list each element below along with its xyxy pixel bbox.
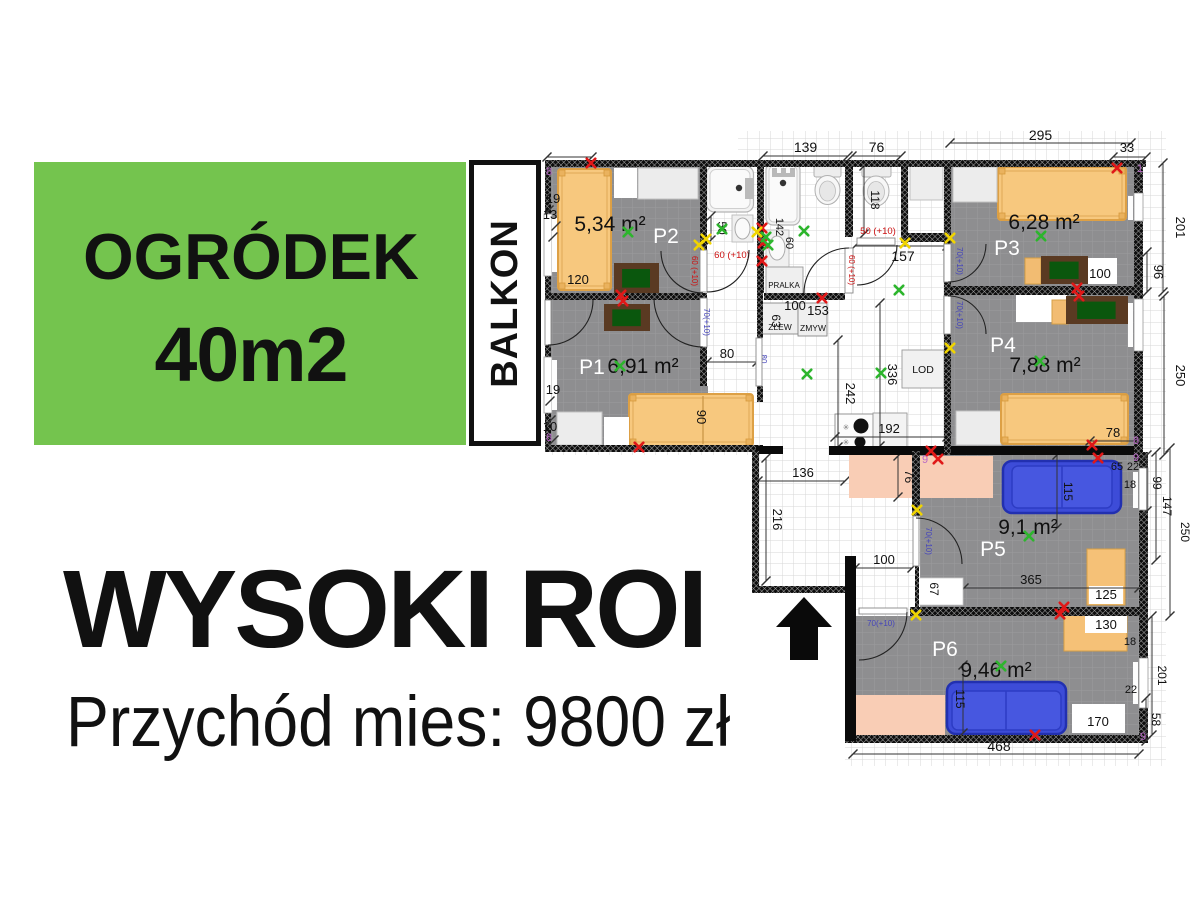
- svg-text:250: 250: [1173, 365, 1188, 387]
- svg-text:P3: P3: [994, 237, 1020, 260]
- svg-text:136: 136: [792, 465, 814, 480]
- svg-text:LOD: LOD: [912, 364, 934, 376]
- svg-text:142: 142: [773, 218, 785, 236]
- svg-text:100: 100: [1089, 266, 1111, 281]
- svg-text:6,28 m²: 6,28 m²: [1008, 211, 1079, 234]
- svg-text:96: 96: [1151, 265, 1166, 279]
- svg-text:120: 120: [567, 272, 589, 287]
- svg-text:100: 100: [784, 298, 806, 313]
- svg-text:295: 295: [1029, 127, 1053, 143]
- svg-text:18: 18: [1124, 479, 1136, 491]
- svg-text:22: 22: [1125, 684, 1137, 696]
- svg-text:70(+10): 70(+10): [955, 247, 964, 275]
- svg-text:130: 130: [1095, 617, 1117, 632]
- svg-text:336: 336: [885, 364, 900, 386]
- svg-text:9: 9: [922, 454, 928, 466]
- svg-text:33: 33: [1120, 140, 1134, 155]
- svg-text:192: 192: [878, 421, 900, 436]
- svg-text:65: 65: [1111, 461, 1123, 473]
- svg-text:9: 9: [1140, 731, 1146, 743]
- svg-text:90: 90: [694, 410, 709, 424]
- svg-text:PRALKA: PRALKA: [768, 281, 800, 290]
- svg-text:63: 63: [769, 314, 783, 328]
- svg-text:153: 153: [807, 303, 829, 318]
- svg-text:468: 468: [987, 738, 1011, 754]
- svg-text:60 (+10): 60 (+10): [847, 255, 856, 285]
- svg-text:70(+10): 70(+10): [702, 308, 711, 336]
- svg-text:P1: P1: [579, 356, 605, 379]
- svg-text:115: 115: [1061, 482, 1075, 501]
- svg-text:70(+10): 70(+10): [867, 619, 895, 628]
- svg-text:201: 201: [1155, 665, 1169, 685]
- svg-text:80: 80: [720, 346, 734, 361]
- svg-text:✳: ✳: [843, 438, 850, 447]
- svg-text:58: 58: [1149, 713, 1163, 727]
- svg-text:157: 157: [891, 248, 915, 264]
- svg-text:139: 139: [794, 139, 818, 155]
- svg-text:365: 365: [1020, 572, 1042, 587]
- svg-text:67: 67: [927, 582, 941, 596]
- svg-text:18: 18: [1124, 636, 1136, 648]
- svg-text:8: 8: [546, 432, 552, 444]
- svg-text:100: 100: [873, 552, 895, 567]
- svg-text:19: 19: [546, 191, 560, 206]
- svg-text:5,34 m²: 5,34 m²: [574, 213, 645, 236]
- svg-text:118: 118: [868, 190, 882, 209]
- svg-text:P6: P6: [932, 638, 958, 661]
- svg-text:60 (+10): 60 (+10): [690, 256, 699, 286]
- svg-text:99: 99: [1150, 476, 1164, 490]
- svg-text:147: 147: [1160, 496, 1174, 516]
- svg-text:8: 8: [546, 166, 552, 178]
- svg-text:201: 201: [1173, 217, 1188, 239]
- svg-text:ZMYW: ZMYW: [800, 323, 826, 333]
- svg-text:60: 60: [783, 237, 795, 249]
- svg-text:78: 78: [1106, 425, 1120, 440]
- svg-text:170: 170: [1087, 714, 1109, 729]
- svg-text:115: 115: [953, 689, 967, 708]
- svg-text:P5: P5: [980, 538, 1006, 561]
- svg-text:8: 8: [1133, 435, 1139, 447]
- svg-text:50 (+10): 50 (+10): [860, 226, 896, 237]
- svg-text:250: 250: [1178, 522, 1192, 542]
- svg-text:70(+10): 70(+10): [955, 301, 964, 329]
- svg-text:70(+10): 70(+10): [924, 527, 933, 555]
- svg-text:9: 9: [1133, 452, 1139, 464]
- svg-text:242: 242: [843, 383, 858, 405]
- svg-text:125: 125: [1095, 587, 1117, 602]
- svg-text:P2: P2: [653, 225, 679, 248]
- svg-text:216: 216: [770, 509, 785, 531]
- svg-text:19: 19: [546, 382, 560, 397]
- svg-text:60 (+10): 60 (+10): [714, 250, 750, 261]
- svg-text:1: 1: [1137, 163, 1143, 175]
- svg-text:76: 76: [869, 139, 885, 155]
- svg-text:✳: ✳: [843, 423, 850, 432]
